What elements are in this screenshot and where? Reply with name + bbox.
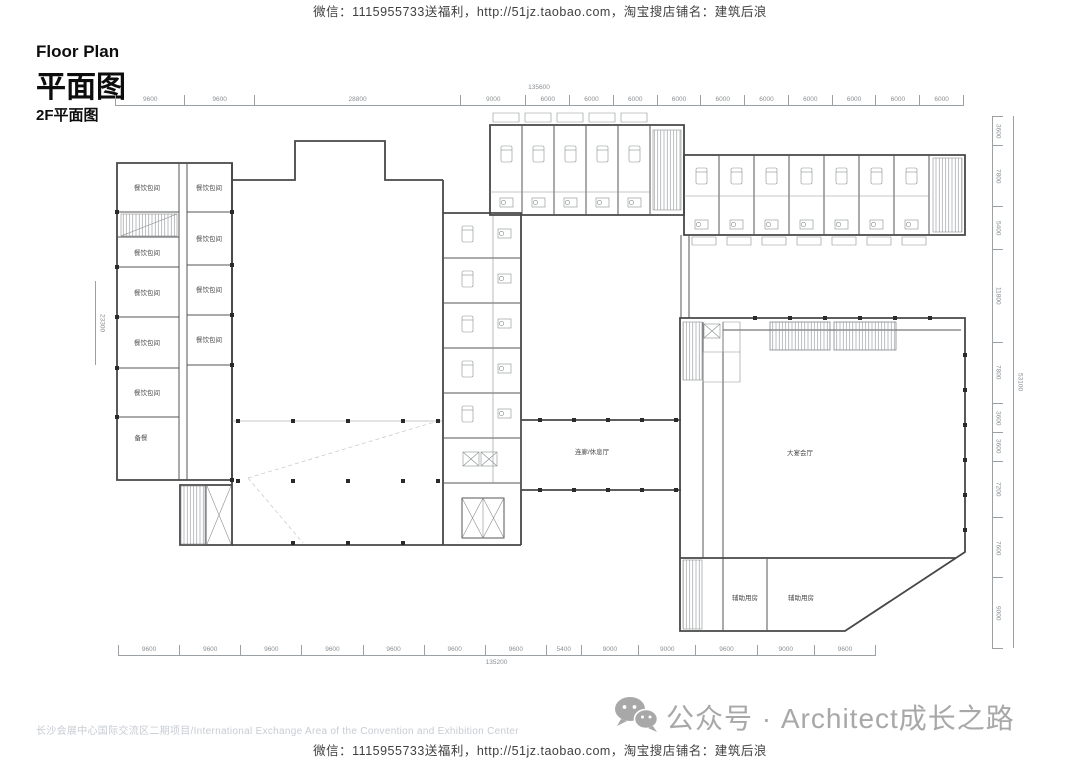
dim-cell: 3600	[992, 116, 1003, 145]
dim-cell: 6000	[832, 95, 876, 106]
dim-cell: 7800	[992, 145, 1003, 206]
ballroom-building	[680, 318, 965, 631]
room-label-dining: 餐饮包间	[134, 387, 160, 397]
guest-room-row-a	[490, 113, 684, 215]
dim-cell: 9000	[581, 645, 638, 656]
dim-cell: 9600	[814, 645, 875, 656]
dim-cell: 9000	[638, 645, 695, 656]
dim-cell: 9600	[184, 95, 253, 106]
dim-cell: 9600	[118, 645, 179, 656]
room-label-dining: 餐饮包间	[134, 247, 160, 257]
dim-cell: 6000	[657, 95, 701, 106]
columns	[115, 210, 967, 545]
dim-left: 23300	[95, 281, 108, 365]
room-label-dining: 餐饮包间	[196, 182, 222, 192]
dim-cell: 7800	[992, 342, 1003, 403]
dim-cell: 11800	[992, 249, 1003, 341]
room-label-aux: 辅助用房	[732, 592, 758, 602]
room-label-ballroom: 大宴会厅	[787, 447, 813, 457]
left-wing	[117, 163, 232, 545]
dimension-col-right: 3600780054001180078003600360072007600900…	[992, 116, 1003, 649]
wechat-account-text: 公众号 · Architect成长之路	[666, 697, 1015, 737]
dim-cell: 9600	[115, 95, 184, 106]
dim-cell: 9600	[485, 645, 546, 656]
dim-cell: 5400	[992, 206, 1003, 249]
dim-cell: 6000	[613, 95, 657, 106]
room-label-dining: 餐饮包间	[134, 337, 160, 347]
dim-cell: 9000	[992, 577, 1003, 648]
dim-cell: 9600	[424, 645, 485, 656]
dim-total-bottom: 135200	[118, 659, 875, 666]
dim-cell: 6000	[919, 95, 963, 106]
dim-cell: 3600	[992, 403, 1003, 432]
project-title-text: 长沙会展中心国际交流区二期项目/International Exchange A…	[36, 722, 519, 737]
dim-cell: 7600	[992, 517, 1003, 577]
dim-cell: 6000	[744, 95, 788, 106]
central-hall	[232, 141, 521, 545]
room-label-dining: 餐饮包间	[196, 233, 222, 243]
room-label-dining: 餐饮包间	[134, 287, 160, 297]
dim-cell: 28800	[254, 95, 460, 106]
dim-cell: 6000	[788, 95, 832, 106]
dim-cell: 6000	[875, 95, 919, 106]
dim-cell: 9000	[757, 645, 814, 656]
dim-cell: 9600	[240, 645, 301, 656]
dim-cell: 5400	[546, 645, 581, 656]
dim-cell: 6000	[569, 95, 613, 106]
room-label-lounge: 连廊/休息厅	[575, 446, 609, 456]
room-label-dining: 餐饮包间	[196, 334, 222, 344]
room-label-aux: 辅助用房	[788, 592, 814, 602]
dim-cell: 9600	[363, 645, 424, 656]
guest-room-row-b	[681, 155, 965, 318]
dim-cell: 3600	[992, 432, 1003, 461]
dim-cell: 6000	[525, 95, 569, 106]
dim-cell: 7200	[992, 461, 1003, 518]
dim-total-top: 135600	[115, 84, 963, 91]
room-label-prep: 备餐	[135, 432, 148, 442]
dim-total-right: 53100	[1013, 116, 1026, 648]
dimension-row-top: 9600960028800900060006000600060006000600…	[115, 95, 964, 106]
dimension-row-bottom: 9600960096009600960096009600540090009000…	[118, 645, 876, 656]
wechat-icon	[612, 694, 660, 734]
dim-cell: 9600	[179, 645, 240, 656]
dim-cell: 9000	[460, 95, 525, 106]
dim-cell: 6000	[700, 95, 744, 106]
dim-cell: 9600	[301, 645, 362, 656]
room-label-dining: 餐饮包间	[196, 284, 222, 294]
dim-cell: 9600	[695, 645, 756, 656]
bottom-watermark-text: 微信：1115955733送福利，http://51jz.taobao.com，…	[0, 740, 1080, 759]
guest-room-strip	[443, 213, 521, 545]
room-label-dining: 餐饮包间	[134, 182, 160, 192]
